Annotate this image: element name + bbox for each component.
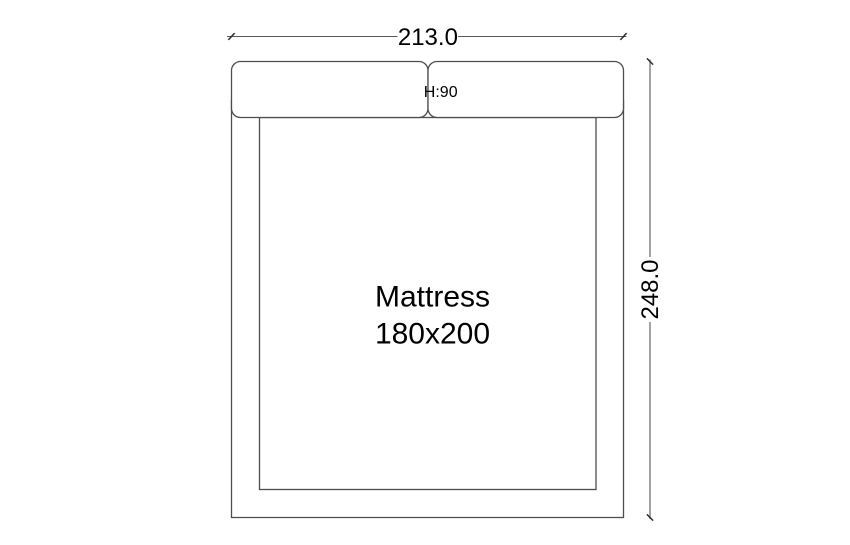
svg-text:248.0: 248.0 bbox=[637, 259, 664, 319]
svg-text:213.0: 213.0 bbox=[398, 24, 458, 51]
svg-text:Mattress: Mattress bbox=[375, 281, 490, 314]
svg-text:H:90: H:90 bbox=[424, 84, 458, 101]
svg-text:180x200: 180x200 bbox=[375, 318, 490, 351]
